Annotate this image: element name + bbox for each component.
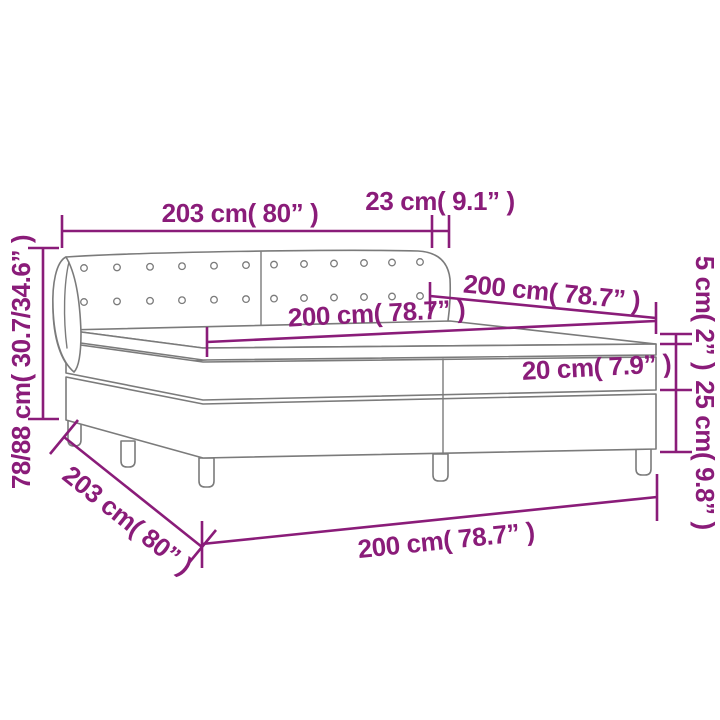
tufting-button xyxy=(114,298,121,305)
bed-dimension-diagram: 203 cm( 80” ) 23 cm( 9.1” ) 78/88 cm( 30… xyxy=(0,0,720,720)
tufting-button xyxy=(271,261,278,268)
tufting-button xyxy=(81,265,88,272)
tufting-button xyxy=(147,264,154,271)
leg-front-corner xyxy=(199,458,214,487)
tufting-button xyxy=(179,263,186,270)
leg-front-right xyxy=(636,448,651,475)
diagram-canvas: 203 cm( 80” ) 23 cm( 9.1” ) 78/88 cm( 30… xyxy=(0,0,720,720)
dim-base-width-label: 200 cm( 78.7” ) xyxy=(356,516,536,564)
tufting-button xyxy=(81,299,88,306)
tufting-button xyxy=(114,264,121,271)
leg-front-mid xyxy=(433,454,448,481)
tufting-button xyxy=(211,296,218,303)
dim-wing-depth-label: 23 cm( 9.1” ) xyxy=(365,186,514,216)
tufting-button xyxy=(301,261,308,268)
dim-topper-thickness-label: 5 cm( 2” ) xyxy=(690,256,720,371)
dim-base-depth-label: 203 cm( 80” ) xyxy=(57,459,198,580)
dim-base-width: 200 cm( 78.7” ) xyxy=(202,474,657,568)
tufting-button xyxy=(361,260,368,267)
tufting-button xyxy=(271,295,278,302)
tufting-button xyxy=(301,295,308,302)
tufting-button xyxy=(243,296,250,303)
leg-left-mid xyxy=(121,441,135,467)
tufting-button xyxy=(243,262,250,269)
dim-overall-height-label: 78/88 cm( 30.7/34.6” ) xyxy=(6,235,36,489)
dim-headboard-width: 203 cm( 80” ) 23 cm( 9.1” ) xyxy=(62,186,515,248)
tufting-button xyxy=(211,262,218,269)
dim-base-height-label: 25 cm( 9.8” ) xyxy=(690,380,720,529)
tufting-button xyxy=(331,260,338,267)
tufting-button xyxy=(417,259,424,266)
tufting-button xyxy=(179,297,186,304)
tufting-button xyxy=(147,298,154,305)
tufting-button xyxy=(389,259,396,266)
dim-headboard-width-label: 203 cm( 80” ) xyxy=(162,198,319,228)
